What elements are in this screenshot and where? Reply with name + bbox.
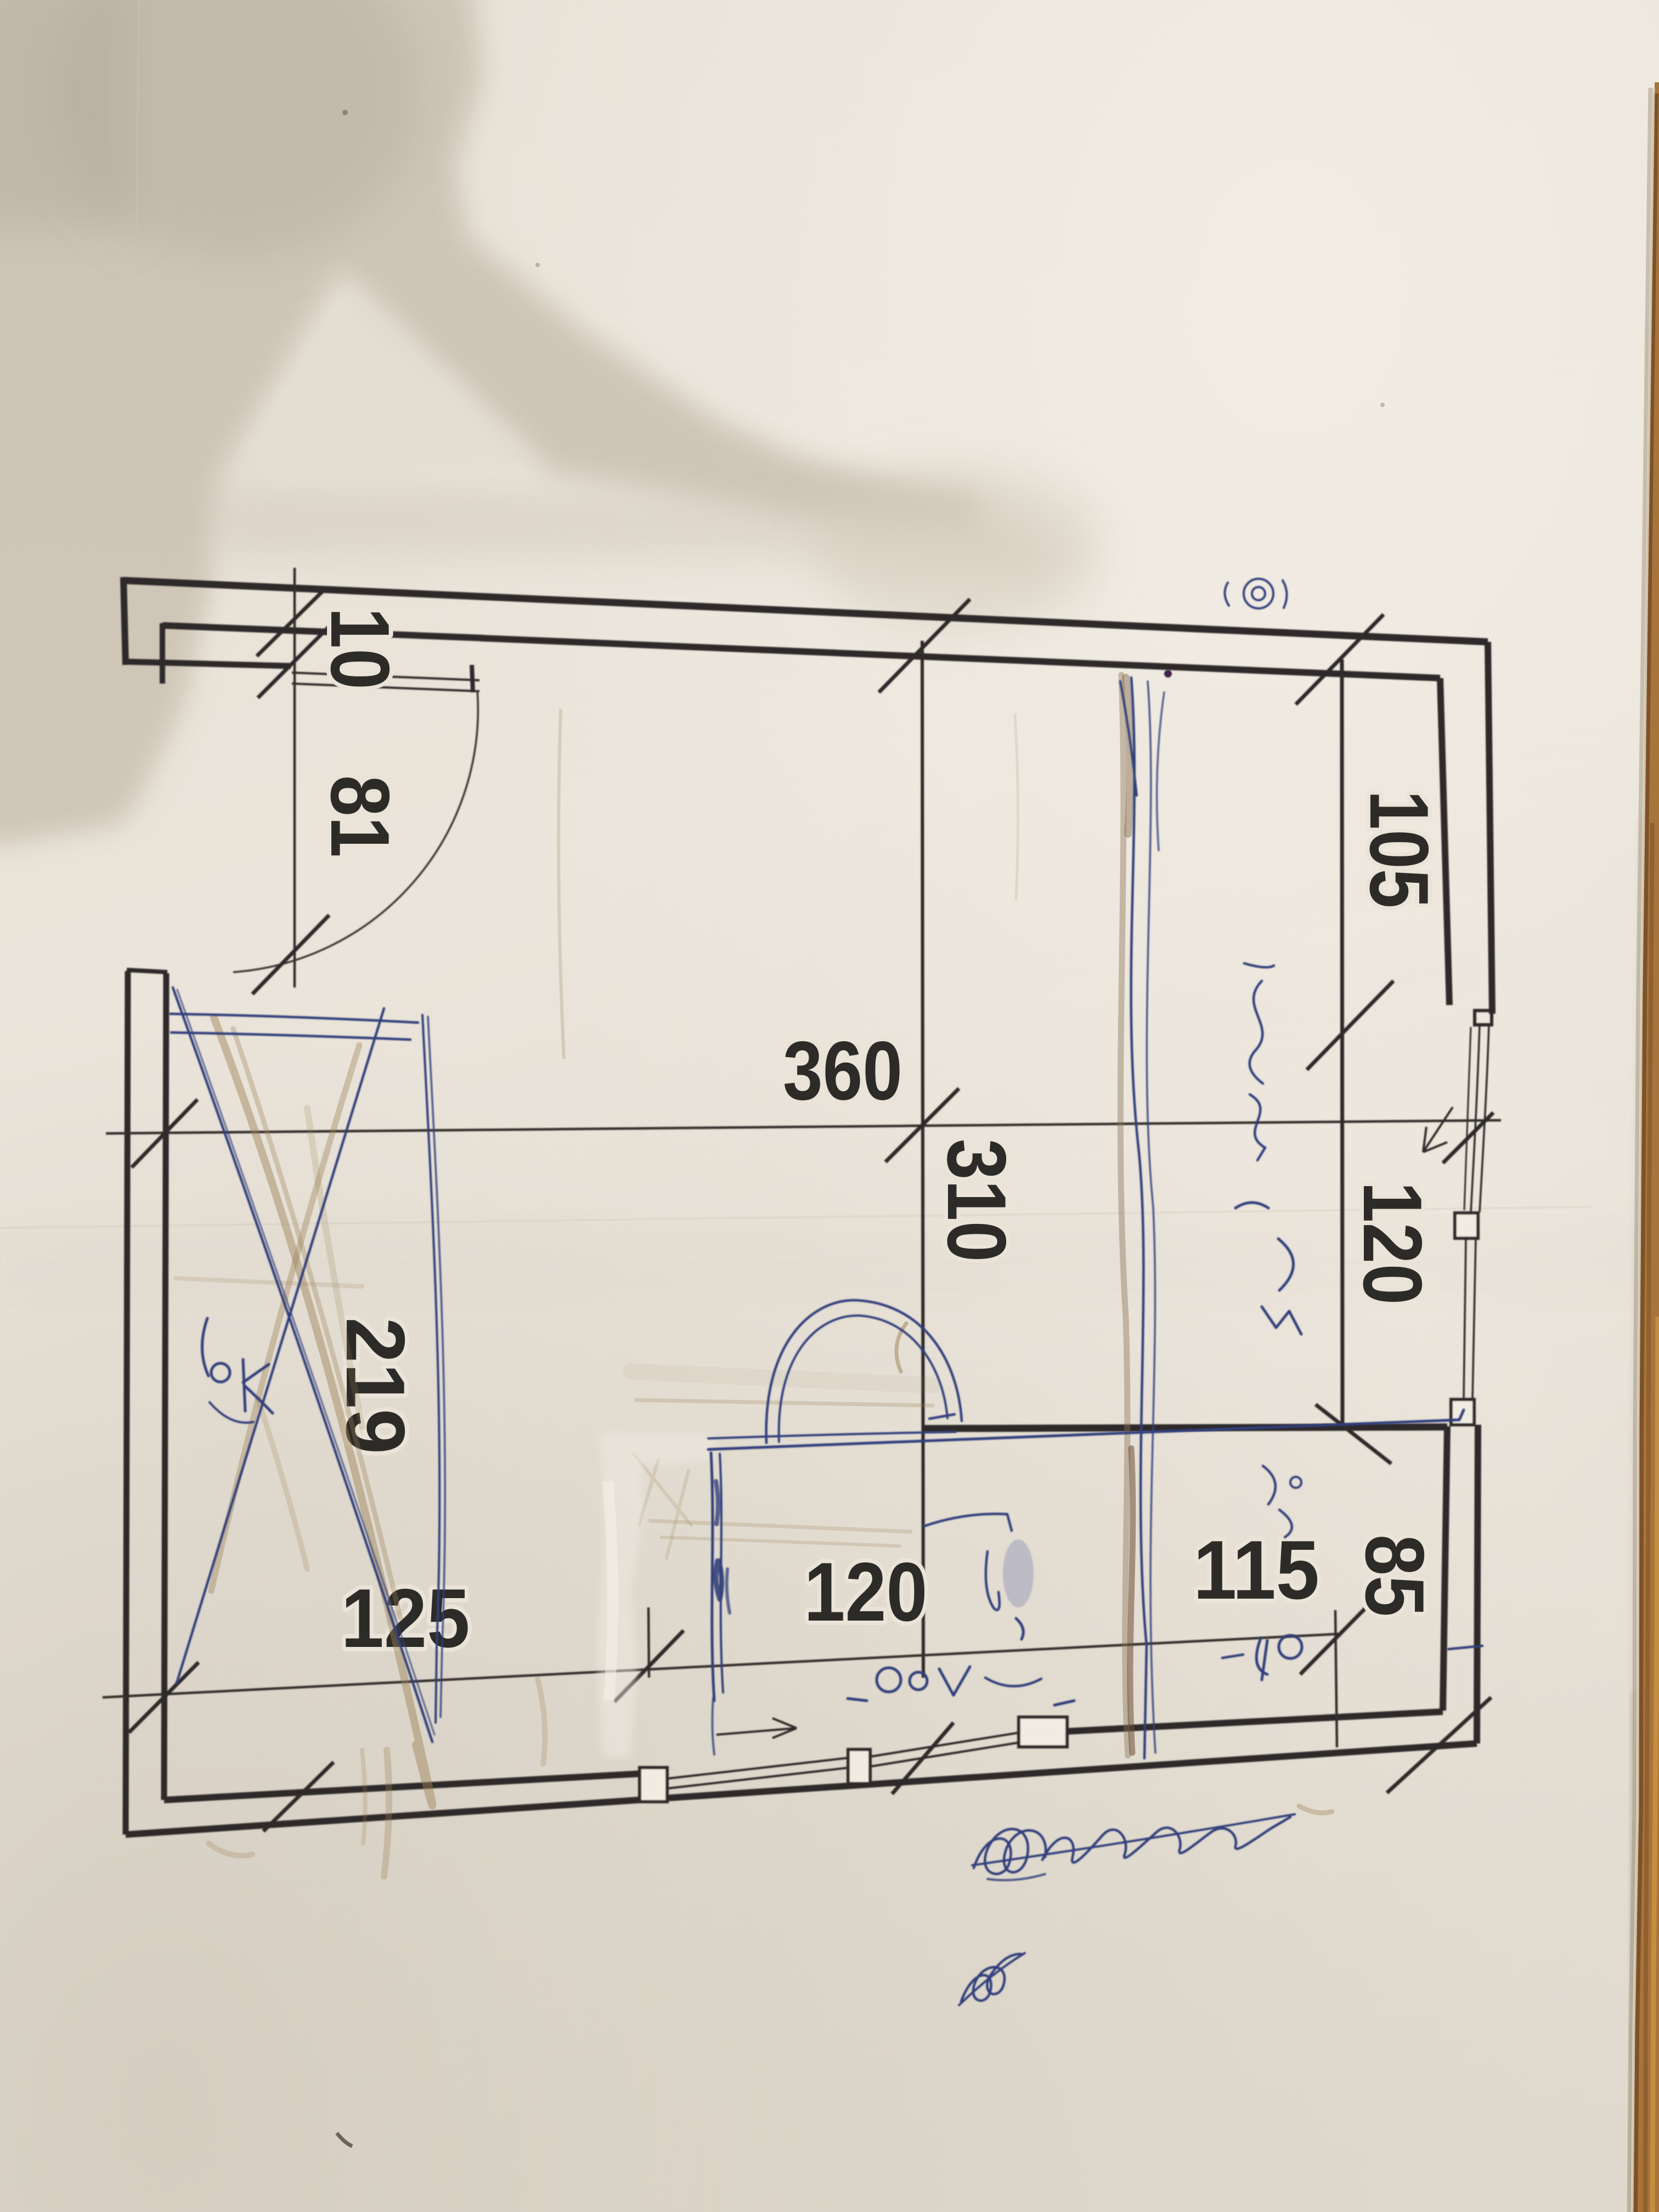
svg-text:85: 85 — [1348, 1534, 1441, 1617]
svg-text:81: 81 — [313, 775, 407, 857]
svg-text:120: 120 — [804, 1545, 928, 1639]
svg-text:310: 310 — [930, 1139, 1023, 1262]
svg-text:105: 105 — [1352, 791, 1446, 909]
svg-text:120: 120 — [1346, 1182, 1439, 1305]
svg-text:125: 125 — [341, 1572, 470, 1665]
svg-text:115: 115 — [1193, 1523, 1319, 1617]
svg-text:360: 360 — [783, 1024, 902, 1118]
svg-text:10: 10 — [313, 607, 407, 690]
